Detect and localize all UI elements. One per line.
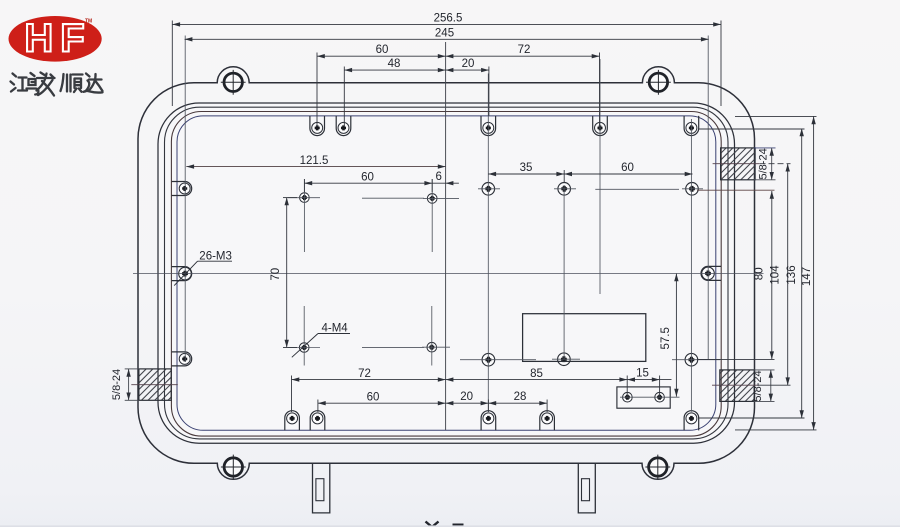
svg-text:28: 28 xyxy=(514,391,527,403)
svg-text:245: 245 xyxy=(435,28,454,40)
svg-text:72: 72 xyxy=(518,44,531,56)
svg-text:57.5: 57.5 xyxy=(660,327,672,349)
svg-text:TM: TM xyxy=(85,19,92,25)
svg-text:136: 136 xyxy=(786,265,798,284)
svg-text:72: 72 xyxy=(358,368,371,380)
svg-text:60: 60 xyxy=(367,392,380,404)
svg-text:5/8-24: 5/8-24 xyxy=(111,369,123,400)
svg-text:20: 20 xyxy=(462,58,475,70)
svg-text:121.5: 121.5 xyxy=(300,155,329,167)
svg-text:4-M4: 4-M4 xyxy=(322,323,349,335)
svg-text:6: 6 xyxy=(435,171,441,183)
svg-text:60: 60 xyxy=(361,172,374,184)
svg-text:HF: HF xyxy=(24,17,91,61)
svg-text:70: 70 xyxy=(270,268,282,281)
svg-text:147: 147 xyxy=(801,267,813,286)
svg-text:35: 35 xyxy=(520,162,533,174)
svg-text:104: 104 xyxy=(770,265,782,285)
svg-text:256.5: 256.5 xyxy=(434,13,463,25)
svg-text:5/8-24: 5/8-24 xyxy=(752,370,764,401)
svg-text:80: 80 xyxy=(754,267,766,280)
svg-text:26-M3: 26-M3 xyxy=(199,250,232,262)
svg-text:20: 20 xyxy=(460,391,473,403)
svg-text:85: 85 xyxy=(530,368,543,380)
svg-text:60: 60 xyxy=(376,44,389,56)
svg-text:15: 15 xyxy=(636,368,649,380)
svg-text:60: 60 xyxy=(621,162,634,174)
svg-text:48: 48 xyxy=(388,58,401,70)
